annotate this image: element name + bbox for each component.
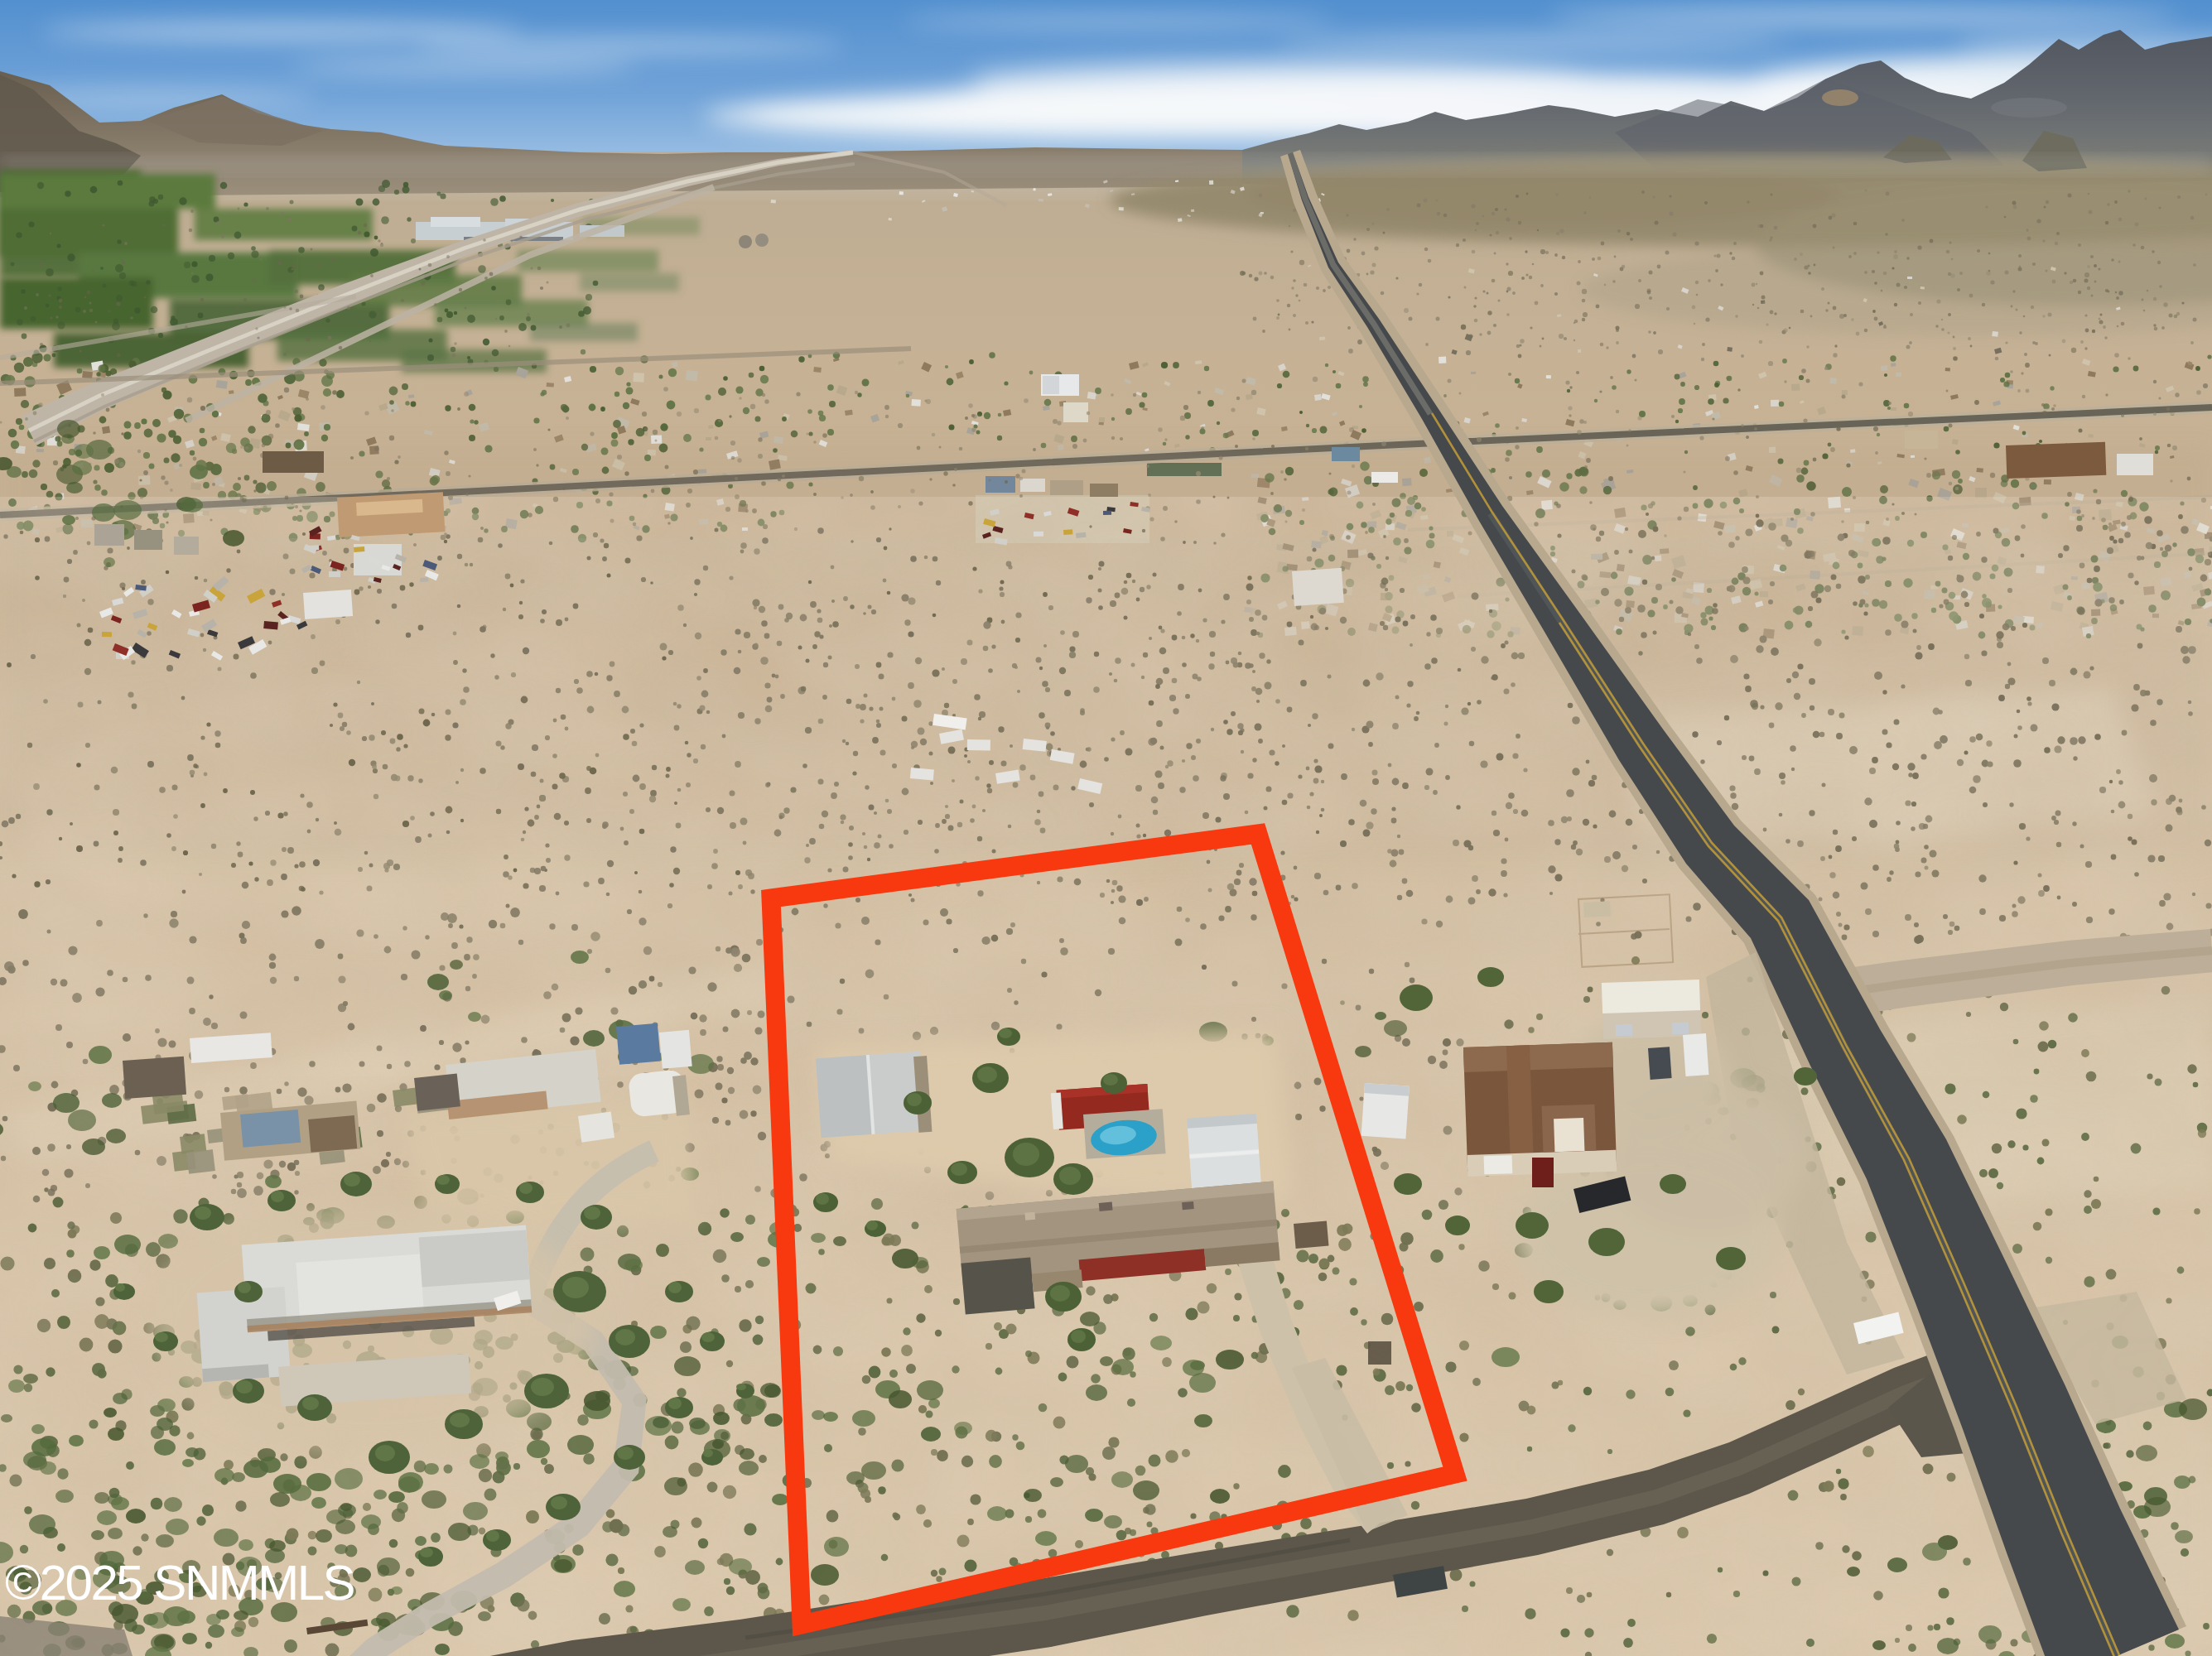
svg-text:©2025 SNMMLS: ©2025 SNMMLS <box>5 1555 354 1610</box>
